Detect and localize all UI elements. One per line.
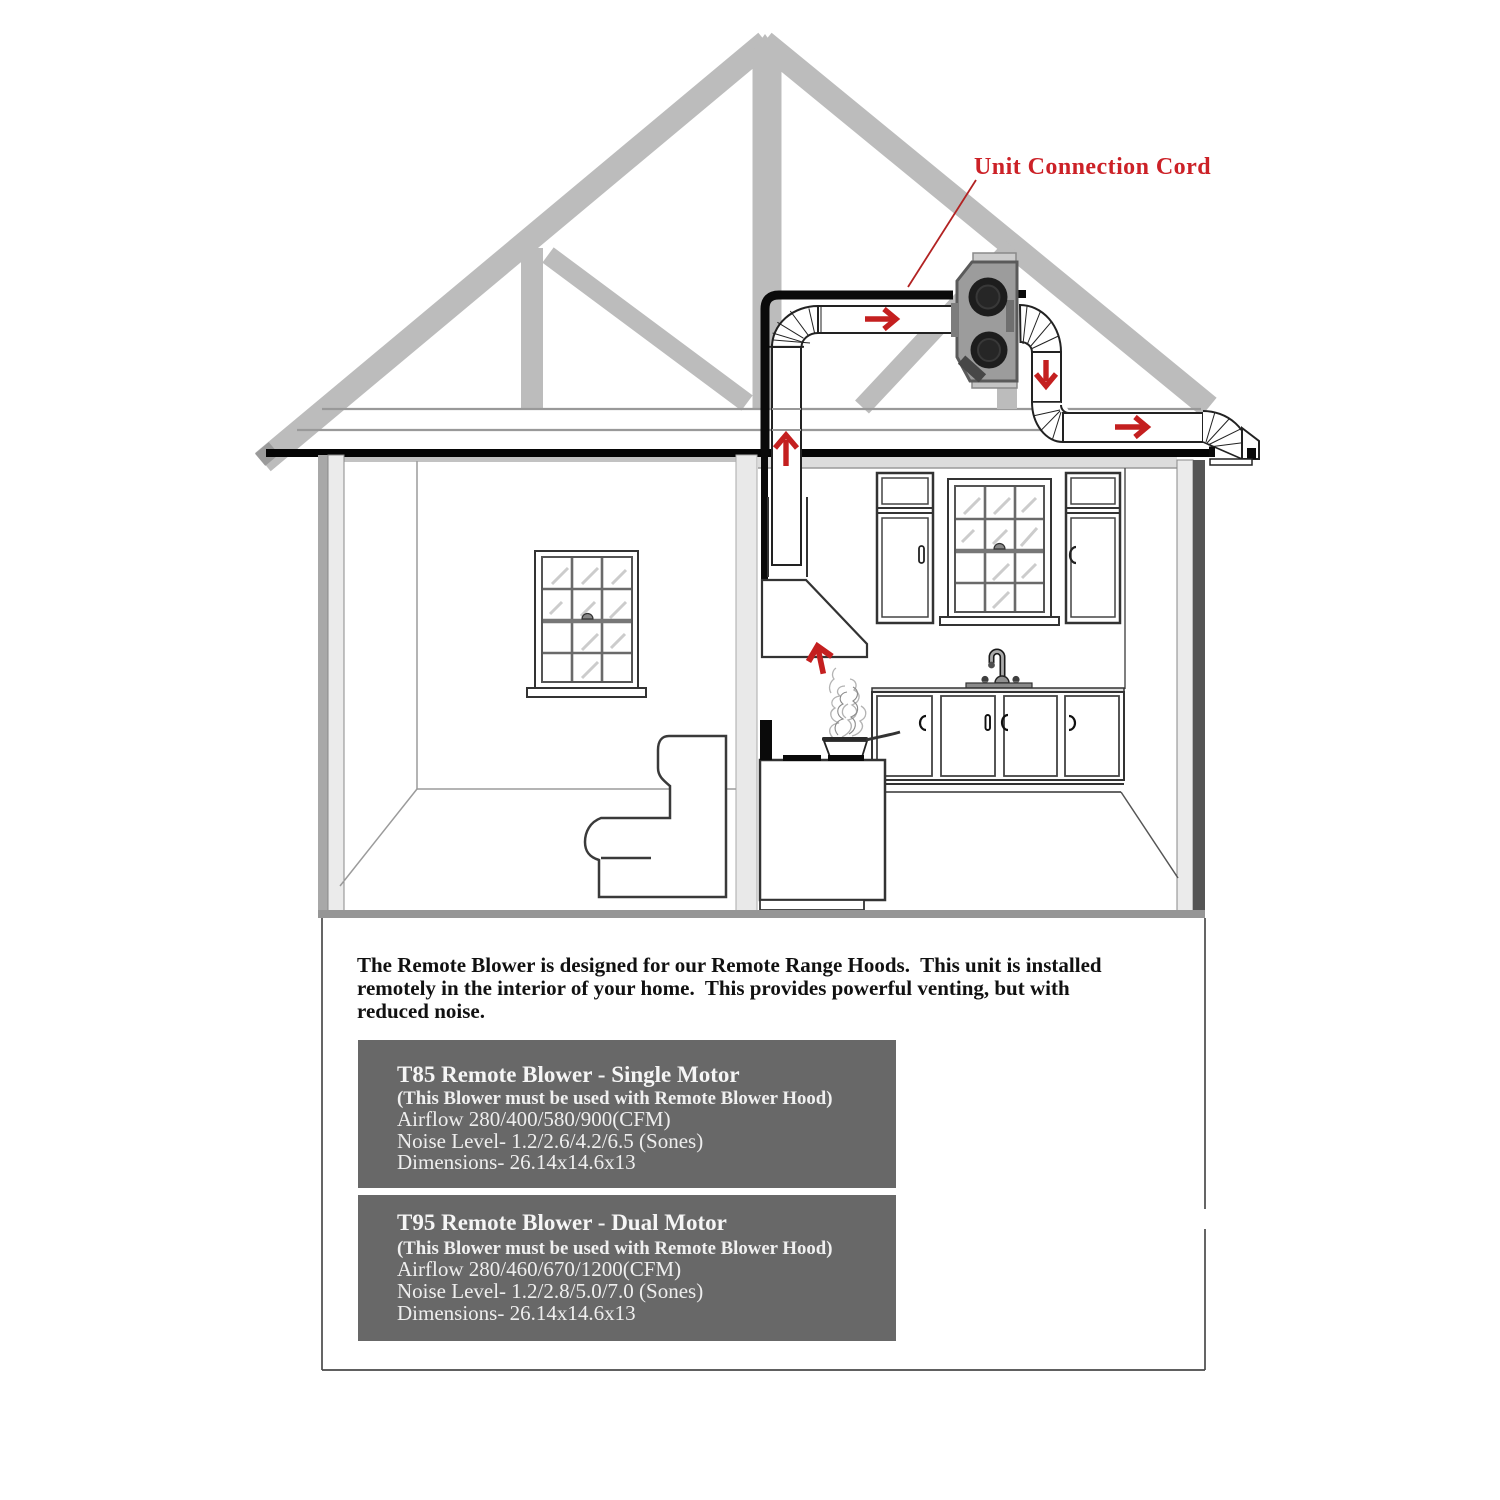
svg-text:Airflow 280/400/580/900(CFM): Airflow 280/400/580/900(CFM): [397, 1107, 671, 1131]
svg-text:remotely in the interior of yo: remotely in the interior of your home. T…: [357, 976, 1070, 1000]
svg-text:(This Blower must be used with: (This Blower must be used with Remote Bl…: [397, 1088, 832, 1109]
svg-text:(This Blower must be used with: (This Blower must be used with Remote Bl…: [397, 1238, 832, 1259]
svg-text:Noise Level- 1.2/2.8/5.0/7.0 (: Noise Level- 1.2/2.8/5.0/7.0 (Sones): [397, 1279, 703, 1303]
svg-text:Unit Connection Cord: Unit Connection Cord: [974, 154, 1211, 180]
svg-text:Dimensions- 26.14x14.6x13: Dimensions- 26.14x14.6x13: [397, 1301, 636, 1325]
svg-text:T85 Remote Blower - Single Mot: T85 Remote Blower - Single Motor: [397, 1062, 740, 1087]
svg-text:The Remote Blower is designed: The Remote Blower is designed for our Re…: [357, 953, 1102, 977]
svg-text:reduced noise.: reduced noise.: [357, 999, 485, 1023]
svg-text:T95 Remote Blower - Dual Motor: T95 Remote Blower - Dual Motor: [397, 1210, 727, 1235]
svg-text:Dimensions- 26.14x14.6x13: Dimensions- 26.14x14.6x13: [397, 1150, 636, 1174]
svg-text:Airflow 280/460/670/1200(CFM): Airflow 280/460/670/1200(CFM): [397, 1257, 681, 1281]
